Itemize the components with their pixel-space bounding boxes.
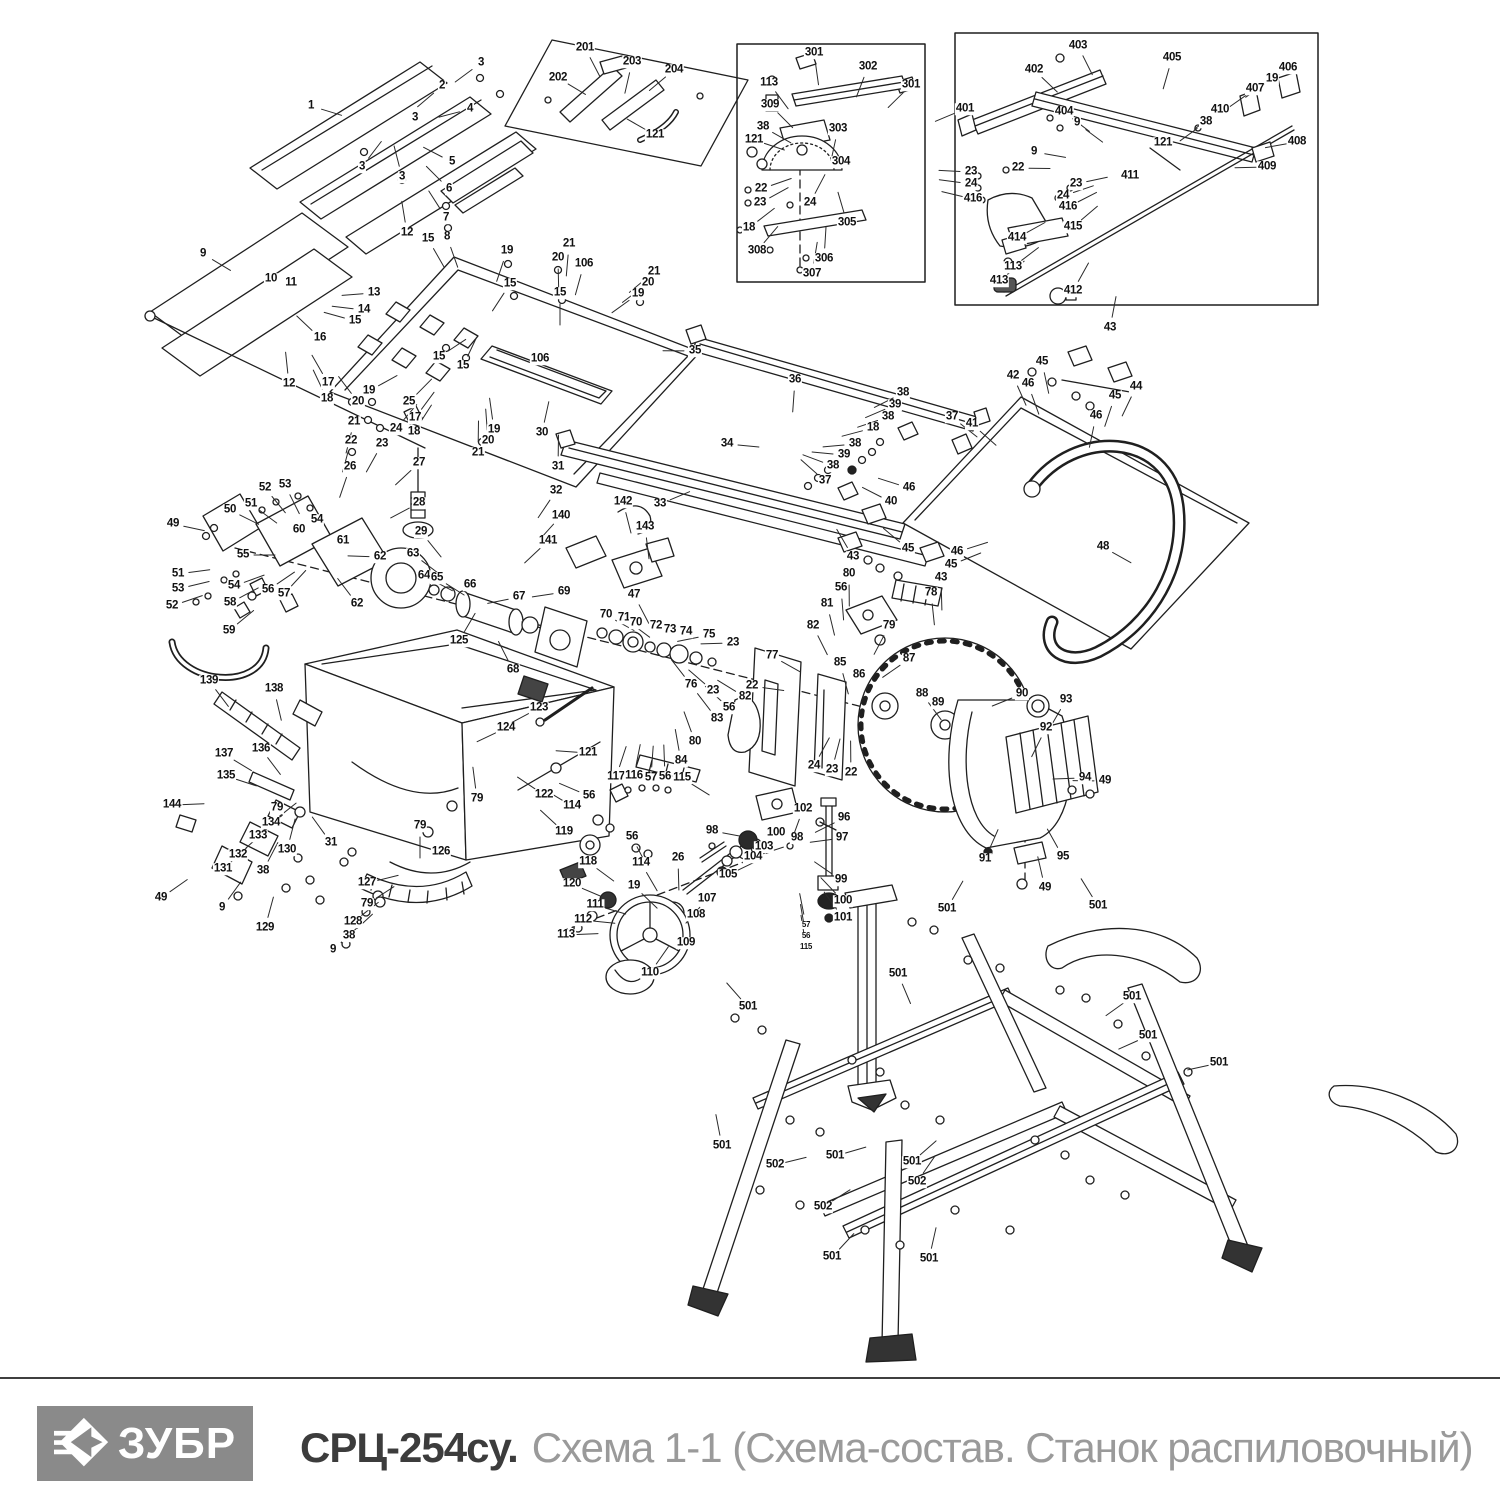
footer-divider [0, 1377, 1500, 1379]
height-screw [403, 448, 433, 538]
zubr-logo-icon [54, 1416, 110, 1472]
schema-subtitle: Схема 1-1 (Схема-состав. Станок распилов… [532, 1424, 1473, 1472]
main-table [330, 257, 700, 487]
model-title: СРЦ-254су. [300, 1424, 518, 1472]
saw-body [305, 630, 614, 860]
stand [688, 885, 1458, 1362]
right-extension-table [903, 397, 1249, 649]
schematic-page: 1233433567812159101113141516192021106151… [0, 0, 1500, 1500]
page-title: СРЦ-254су. Схема 1-1 (Схема-состав. Стан… [300, 1424, 1473, 1472]
inset-leg-assembly [505, 40, 748, 166]
dust-chute [949, 695, 1098, 889]
zubr-logo: ЗУБР [37, 1406, 253, 1481]
inset-rip-fence [955, 33, 1318, 305]
inset-miter-gauge [737, 44, 925, 282]
rear-column [700, 788, 840, 922]
exploded-diagram [0, 0, 1500, 1500]
brand-name: ЗУБР [118, 1422, 236, 1466]
